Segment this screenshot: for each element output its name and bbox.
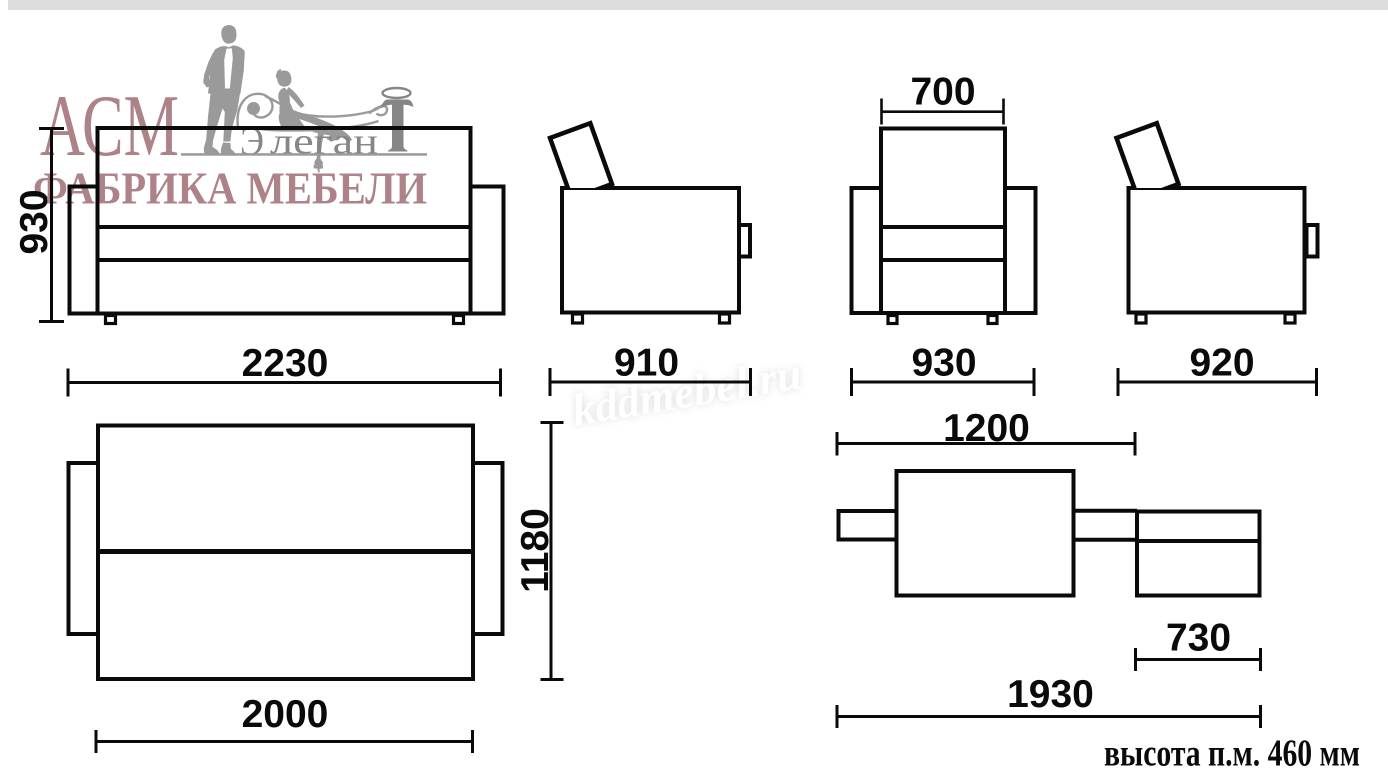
svg-text:Э: Э [240,119,264,164]
svg-text:высота п.м. 460 мм: высота п.м. 460 мм [1104,733,1360,775]
svg-text:1930: 1930 [1007,673,1094,716]
svg-text:920: 920 [1189,342,1254,385]
svg-text:2000: 2000 [242,693,329,736]
svg-text:730: 730 [1166,617,1231,660]
svg-text:1200: 1200 [943,407,1030,450]
svg-text:930: 930 [13,189,56,254]
svg-text:930: 930 [911,342,976,385]
svg-text:910: 910 [614,342,679,385]
svg-text:1180: 1180 [514,508,557,593]
svg-text:700: 700 [910,71,975,114]
svg-text:2230: 2230 [242,342,329,385]
